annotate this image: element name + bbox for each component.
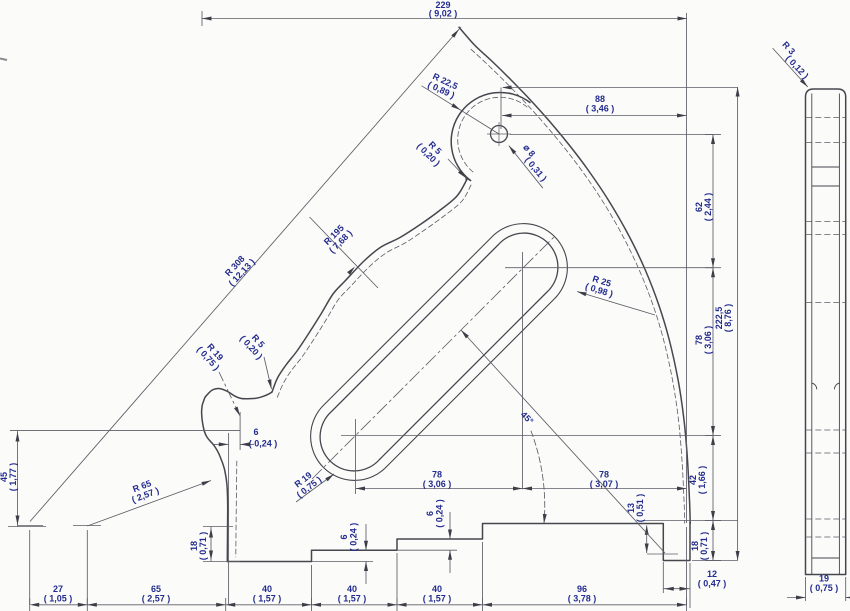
svg-text:6: 6 <box>425 511 435 516</box>
svg-text:40: 40 <box>262 584 272 594</box>
svg-text:( 1,77 ): ( 1,77 ) <box>8 463 18 492</box>
svg-text:27: 27 <box>53 584 63 594</box>
svg-text:( 1,66 ): ( 1,66 ) <box>697 466 707 495</box>
svg-text:( 1,57 ): ( 1,57 ) <box>338 594 367 604</box>
svg-text:88: 88 <box>595 94 605 104</box>
svg-text:( 1,05 ): ( 1,05 ) <box>44 594 73 604</box>
svg-text:40: 40 <box>432 584 442 594</box>
svg-text:( 3,06 ): ( 3,06 ) <box>703 326 713 355</box>
svg-text:( 3,46 ): ( 3,46 ) <box>586 104 615 114</box>
svg-text:( 1,57 ): ( 1,57 ) <box>423 594 452 604</box>
svg-text:( 0,71 ): ( 0,71 ) <box>699 532 709 561</box>
svg-text:78: 78 <box>432 470 442 480</box>
svg-text:( 3,78 ): ( 3,78 ) <box>568 594 597 604</box>
svg-text:6: 6 <box>253 427 258 437</box>
svg-text:( 3,06 ): ( 3,06 ) <box>423 479 452 489</box>
svg-text:( 0,71 ): ( 0,71 ) <box>198 532 208 561</box>
svg-text:40: 40 <box>347 584 357 594</box>
svg-text:( 0,24 ): ( 0,24 ) <box>435 499 445 528</box>
svg-text:( 0,51 ): ( 0,51 ) <box>635 494 645 523</box>
svg-text:( 0,24 ): ( 0,24 ) <box>349 523 359 552</box>
svg-text:( 0,75 ): ( 0,75 ) <box>810 583 839 593</box>
svg-text:( 3,07 ): ( 3,07 ) <box>590 479 619 489</box>
svg-text:( 8,76 ): ( 8,76 ) <box>723 304 733 333</box>
svg-text:65: 65 <box>151 584 161 594</box>
svg-text:( 2,44 ): ( 2,44 ) <box>703 193 713 222</box>
svg-text:96: 96 <box>577 584 587 594</box>
svg-text:( 0,24 ): ( 0,24 ) <box>249 439 278 449</box>
svg-text:( 2,57 ): ( 2,57 ) <box>142 594 171 604</box>
svg-text:( 1,57 ): ( 1,57 ) <box>253 594 282 604</box>
svg-text:( 9,02 ): ( 9,02 ) <box>429 9 458 19</box>
svg-text:78: 78 <box>599 470 609 480</box>
svg-text:19: 19 <box>819 574 829 584</box>
svg-text:12: 12 <box>707 569 717 579</box>
svg-text:( 0,47 ): ( 0,47 ) <box>698 579 727 589</box>
svg-text:6: 6 <box>339 534 349 539</box>
